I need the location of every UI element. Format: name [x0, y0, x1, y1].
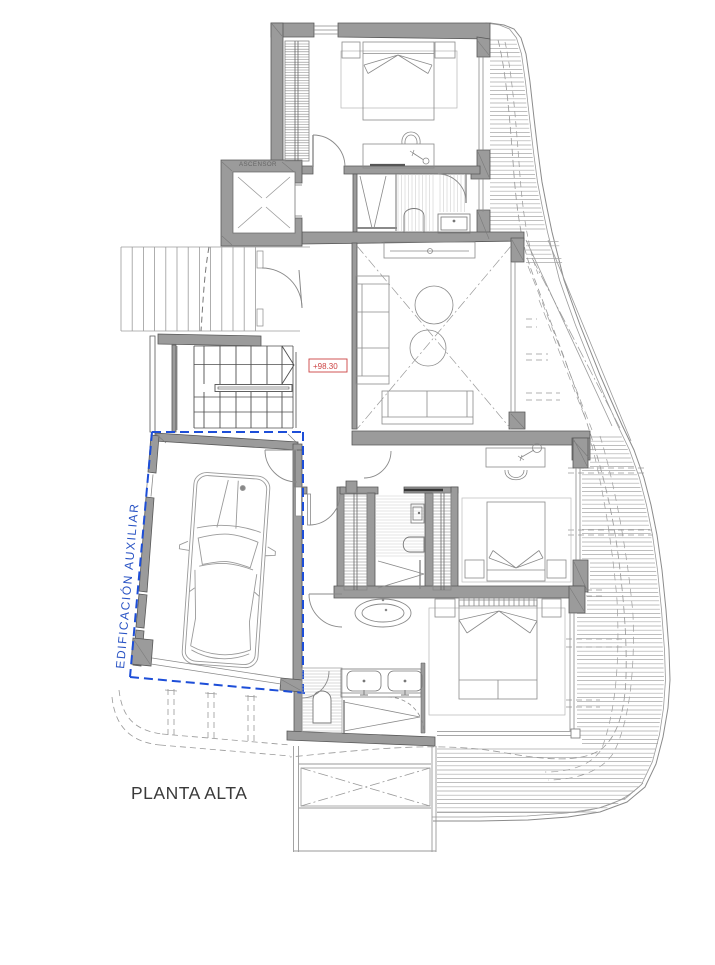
svg-text:+98.30: +98.30 — [313, 362, 338, 371]
svg-text:PLANTA ALTA: PLANTA ALTA — [131, 783, 247, 803]
svg-text:ASCENSOR: ASCENSOR — [239, 161, 277, 168]
